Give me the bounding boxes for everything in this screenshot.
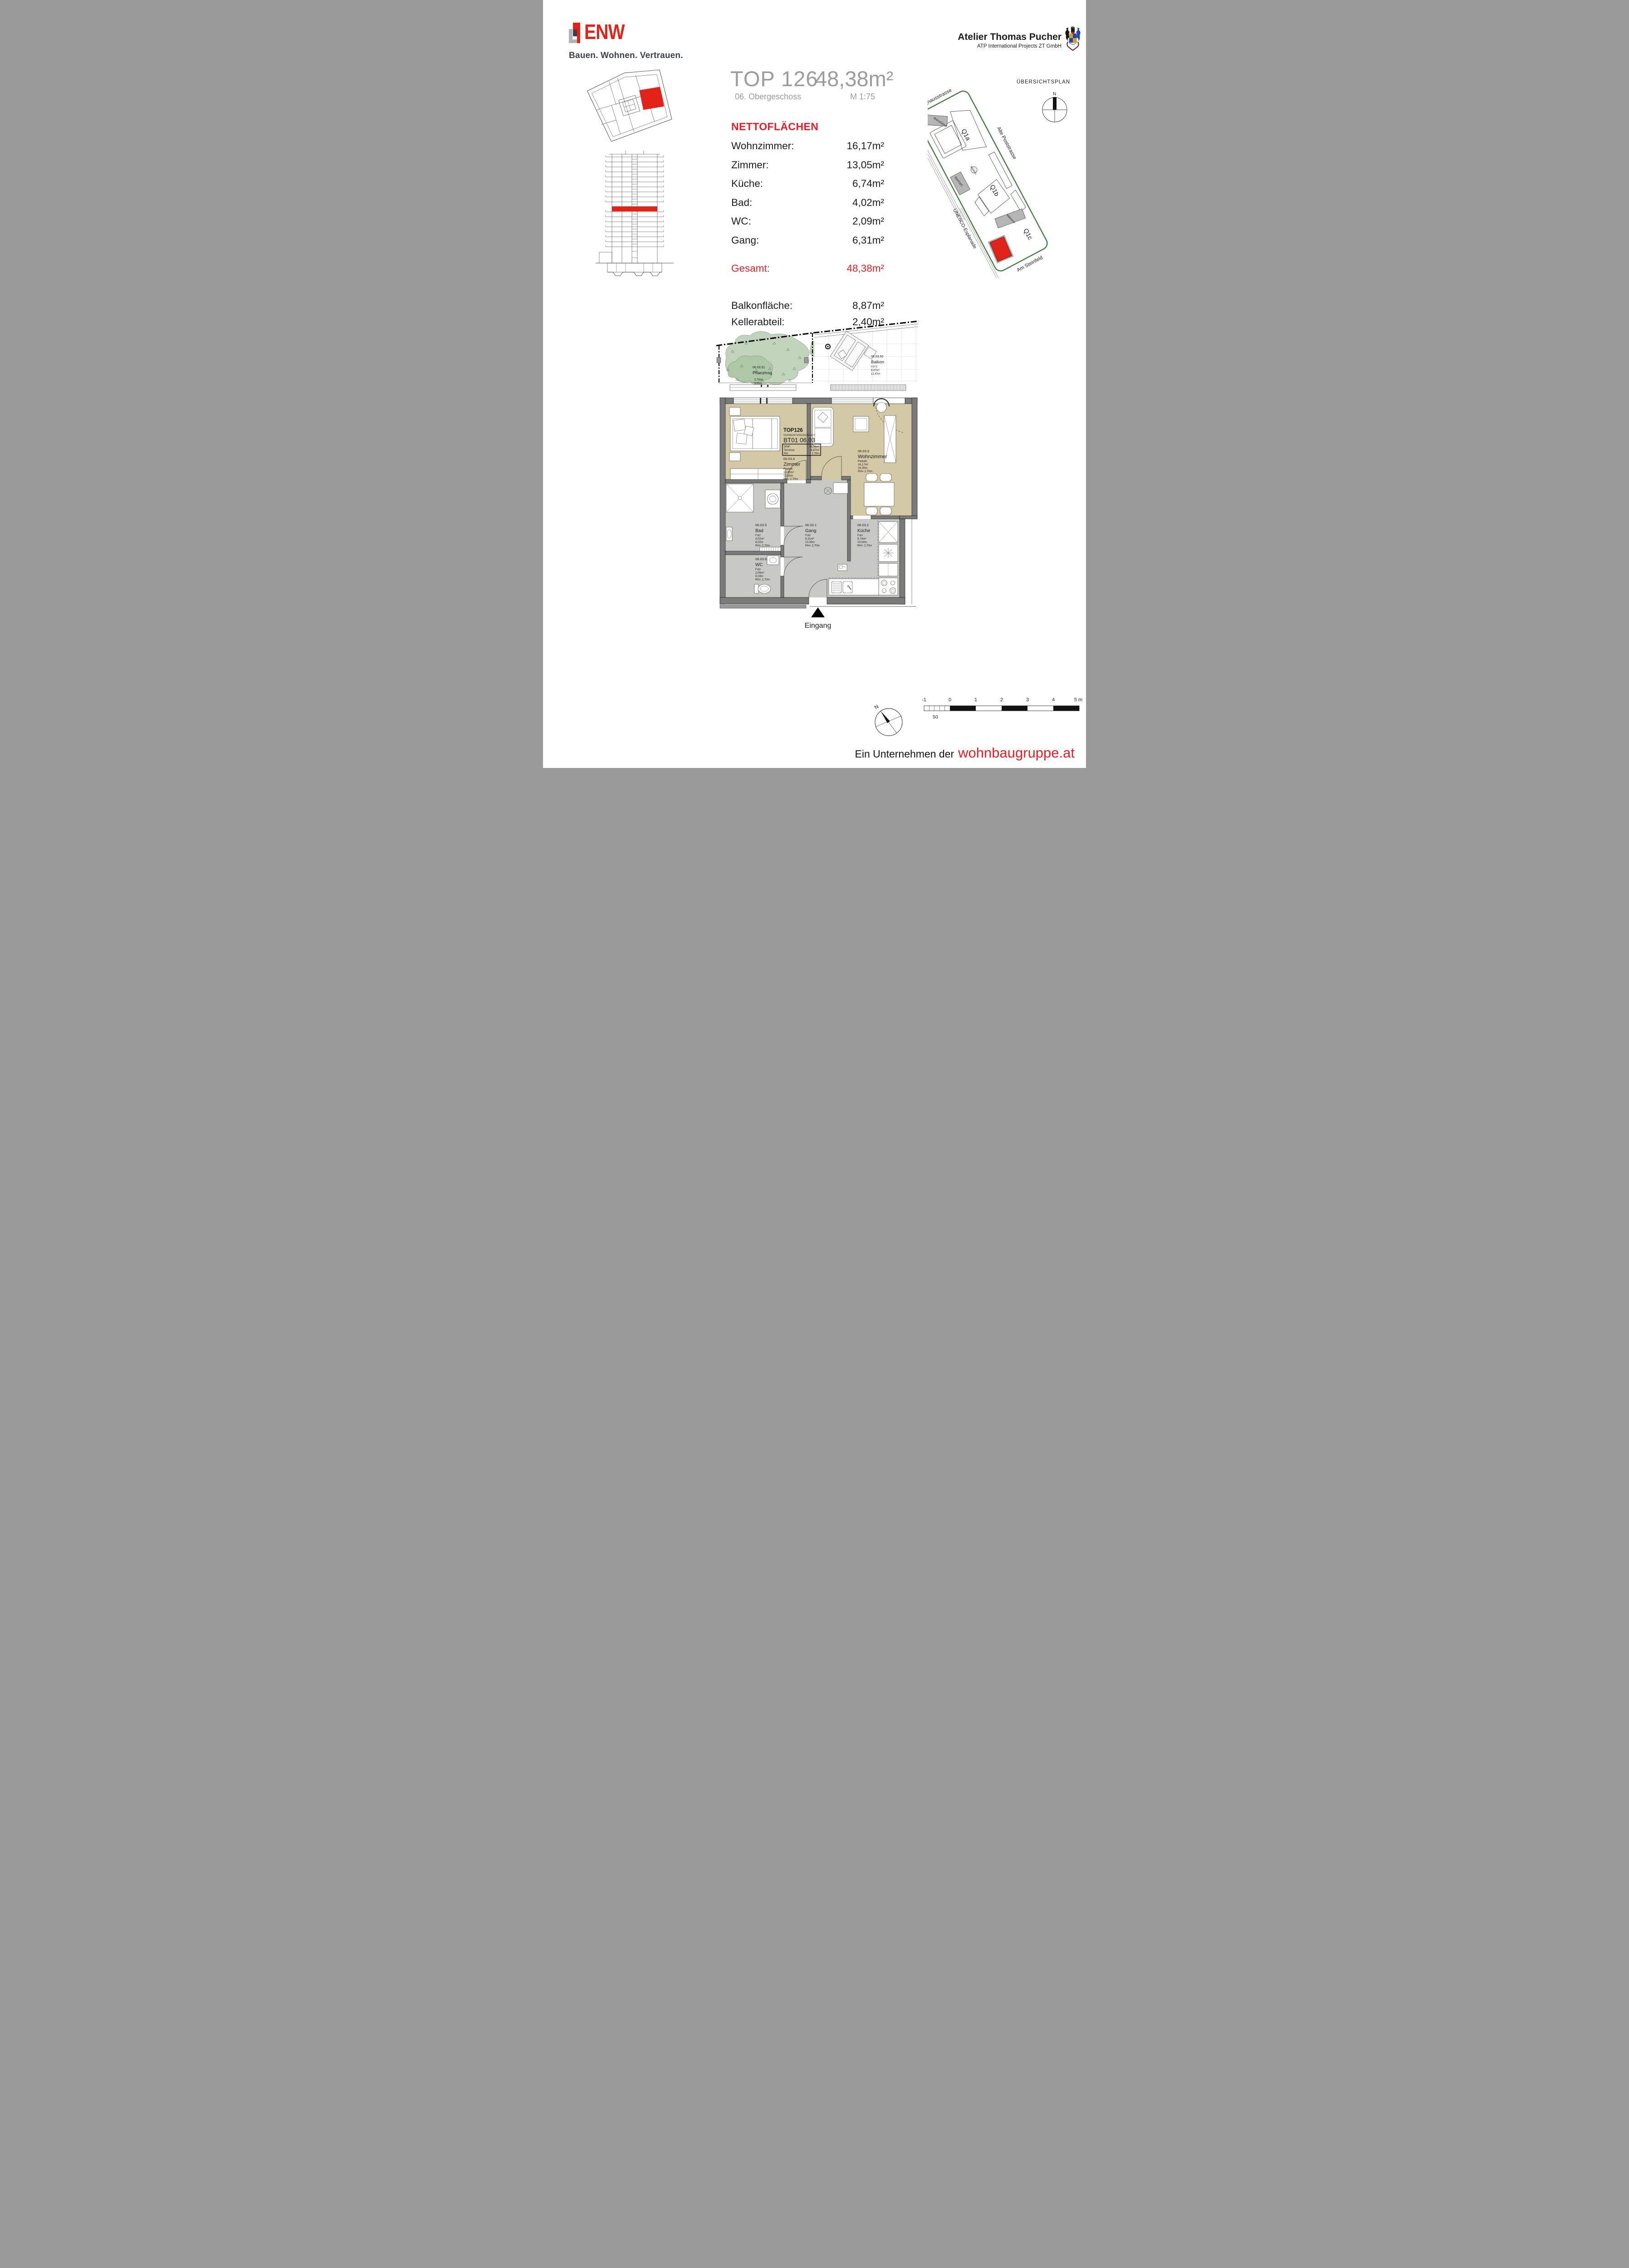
row-value: 48,38m²: [846, 263, 884, 274]
nightstand: [729, 407, 740, 415]
svg-text:13,05m²: 13,05m²: [783, 471, 794, 474]
footer-prefix: Ein Unternehmen der: [855, 748, 954, 760]
svg-text:Wohnzimmer: Wohnzimmer: [858, 454, 887, 459]
svg-text:3: 3: [1026, 697, 1029, 703]
svg-text:8,87m²: 8,87m²: [811, 449, 819, 452]
svg-text:06.03.51: 06.03.51: [753, 366, 765, 369]
section-highlight-floor: [612, 206, 657, 211]
svg-text:15,43m: 15,43m: [783, 474, 793, 478]
svg-text:12,47m: 12,47m: [871, 373, 880, 376]
svg-text:Pflanztrog: Pflanztrog: [753, 371, 772, 376]
balkon-area: [813, 316, 919, 391]
svg-text:6,74m²: 6,74m²: [857, 538, 866, 541]
svg-text:-1: -1: [922, 697, 926, 703]
svg-text:4: 4: [1052, 697, 1055, 703]
svg-text:Fstz: Fstz: [857, 534, 863, 537]
svg-text:RH= 2,70m: RH= 2,70m: [755, 544, 770, 547]
plan-compass-icon: N: [866, 693, 911, 745]
netto-table: NETTOFLÄCHEN Wohnzimmer:16,17m² Zimmer:1…: [731, 121, 884, 332]
svg-text:Parkett: Parkett: [858, 460, 867, 463]
svg-text:06.03.50: 06.03.50: [871, 355, 883, 358]
page-title-area: 48,38m²: [815, 66, 883, 91]
row-label: Balkonfläche:: [731, 300, 792, 312]
svg-text:Fstz: Fstz: [805, 534, 811, 537]
netto-row: Zimmer:13,05m²: [731, 159, 884, 178]
chair: [880, 507, 891, 515]
row-label: Zimmer:: [731, 159, 769, 171]
svg-text:Terrasse:: Terrasse:: [784, 449, 795, 452]
svg-text:4,02m²: 4,02m²: [755, 538, 764, 541]
row-label: WC:: [731, 215, 751, 227]
svg-text:2: 2: [1000, 697, 1003, 703]
svg-text:Gang: Gang: [805, 528, 816, 533]
row-value: 16,17m²: [846, 140, 884, 152]
row-value: 6,31m²: [852, 235, 884, 246]
row-label: Küche:: [731, 178, 763, 190]
nightstand: [729, 453, 740, 461]
footer-brand: wohnbaugruppe.at: [958, 745, 1075, 761]
north-compass-icon: N: [1042, 92, 1067, 122]
site-plan-title: ÜBERSICHTSPLAN: [1017, 79, 1070, 85]
svg-text:N: N: [1053, 92, 1056, 97]
floor-plan: TOP126 VERWERTUNGSEINHEIT BT01 06.03 WNF…: [714, 314, 921, 636]
row-value: 6,74m²: [852, 178, 884, 190]
radiator: [760, 547, 781, 551]
svg-text:RH:: RH:: [784, 453, 789, 455]
svg-text:06.03.4: 06.03.4: [783, 457, 795, 461]
zimmer-window-sill: [730, 385, 796, 391]
dining-table: [864, 483, 894, 506]
enw-logo: ENW: [569, 23, 631, 44]
svg-text:Bad: Bad: [755, 528, 763, 533]
row-value: 8,87m²: [852, 300, 884, 312]
page-title-scale: M 1:75: [815, 92, 875, 102]
svg-text:10,54m: 10,54m: [857, 541, 867, 544]
svg-text:06.03.5: 06.03.5: [755, 523, 767, 527]
architect-crest-icon: [1064, 26, 1081, 51]
svg-text:Parkett: Parkett: [783, 468, 792, 471]
logo-tagline: Bauen. Wohnen. Vertrauen.: [569, 51, 683, 61]
chair: [866, 507, 877, 515]
plan-sheet: ENW Bauen. Wohnen. Vertrauen. Atelier Th…: [543, 0, 1086, 768]
footer: Ein Unternehmen der wohnbaugruppe.at: [855, 745, 1075, 761]
svg-text:WNF:: WNF:: [784, 446, 791, 449]
svg-text:WC: WC: [755, 562, 763, 567]
svg-text:RH= 2,70m: RH= 2,70m: [858, 470, 872, 473]
svg-text:0: 0: [949, 697, 951, 703]
svg-text:Fstz: Fstz: [755, 568, 761, 571]
svg-text:Fstz: Fstz: [755, 534, 761, 537]
svg-text:2,09m²: 2,09m²: [755, 572, 764, 575]
enw-logo-mark: [569, 23, 581, 44]
svg-text:RH= 2,70m: RH= 2,70m: [857, 544, 872, 547]
netto-total-row: Gesamt:48,38m²: [731, 263, 884, 282]
svg-text:50: 50: [933, 714, 938, 720]
svg-text:RH= 2,70m: RH= 2,70m: [755, 578, 770, 582]
dishwasher-symbol: [838, 564, 847, 571]
unit-code: BT01 06.03: [783, 437, 815, 444]
row-value: 2,09m²: [852, 215, 884, 227]
row-label: Gang:: [731, 235, 759, 246]
svg-text:06.03.6: 06.03.6: [755, 557, 767, 561]
netto-row: Gang:6,31m²: [731, 235, 884, 254]
row-label: Bad:: [731, 197, 752, 209]
netto-row: WC:2,09m²: [731, 215, 884, 235]
svg-text:Küche: Küche: [857, 528, 871, 533]
desk: [833, 483, 848, 494]
netto-heading: NETTOFLÄCHEN: [731, 121, 884, 133]
chair: [866, 474, 877, 481]
key-plan-highlight-unit: [637, 84, 665, 112]
svg-text:2,70m: 2,70m: [812, 453, 819, 455]
svg-text:Zimmer: Zimmer: [783, 462, 801, 467]
site-plan: ÜBERSICHTSPLAN N: [928, 76, 1084, 278]
svg-text:10,39m: 10,39m: [805, 541, 815, 544]
chair: [880, 474, 891, 481]
key-plan: [584, 68, 679, 142]
row-value: 4,02m²: [852, 197, 884, 209]
svg-text:RH= 2,70m: RH= 2,70m: [783, 478, 798, 481]
logo-wordmark: ENW: [584, 23, 625, 41]
netto-row: Küche:6,74m²: [731, 178, 884, 197]
row-label: Wohnzimmer:: [731, 140, 794, 152]
page-title-floor: 06. Obergeschoss: [735, 92, 801, 102]
svg-text:N: N: [874, 704, 880, 711]
svg-text:6,04m: 6,04m: [755, 575, 763, 578]
svg-text:6,31m²: 6,31m²: [805, 538, 814, 541]
zimmer-furniture: [729, 407, 785, 479]
svg-text:Balkon: Balkon: [871, 360, 884, 365]
svg-text:FSTZ: FSTZ: [871, 366, 878, 368]
netto-row: Wohnzimmer:16,17m²: [731, 140, 884, 159]
netto-row: Bad:4,02m²: [731, 197, 884, 216]
section-floors: [606, 155, 664, 247]
svg-text:06.03.3: 06.03.3: [858, 449, 869, 453]
entrance-arrow-icon: [811, 607, 825, 617]
svg-text:8,02m: 8,02m: [755, 541, 763, 544]
svg-text:5,79m²: 5,79m²: [754, 379, 763, 381]
page-title-unit: TOP 126: [730, 66, 818, 91]
cooktop-symbol: [883, 548, 893, 558]
svg-text:5 m: 5 m: [1074, 697, 1082, 703]
wohnzimmer-window-sill: [831, 385, 906, 391]
svg-text:16,35m: 16,35m: [858, 467, 867, 470]
building-section: [594, 149, 675, 285]
svg-text:1: 1: [974, 697, 977, 703]
row-value: 13,05m²: [846, 159, 884, 171]
svg-text:48,38m²: 48,38m²: [809, 446, 819, 449]
svg-text:RH= 2,70m: RH= 2,70m: [805, 544, 820, 547]
row-label: Gesamt:: [731, 263, 770, 274]
toilet-tank: [754, 584, 758, 593]
architect-block: Atelier Thomas Pucher ATP International …: [958, 32, 1062, 49]
svg-text:16,17m²: 16,17m²: [858, 463, 868, 466]
unit-name: TOP126: [783, 428, 803, 433]
svg-text:06.03.2: 06.03.2: [857, 523, 869, 527]
scale-bar: -1 0 1 2 3 4 5 m 50: [920, 692, 1085, 728]
svg-text:8,87m²: 8,87m²: [871, 369, 880, 372]
architect-subtitle: ATP International Projects ZT GmbH: [958, 44, 1062, 49]
entrance-label: Eingang: [805, 622, 832, 630]
architect-name: Atelier Thomas Pucher: [958, 32, 1062, 43]
svg-text:9,65m: 9,65m: [754, 382, 762, 385]
svg-text:06.03.1: 06.03.1: [805, 523, 817, 527]
